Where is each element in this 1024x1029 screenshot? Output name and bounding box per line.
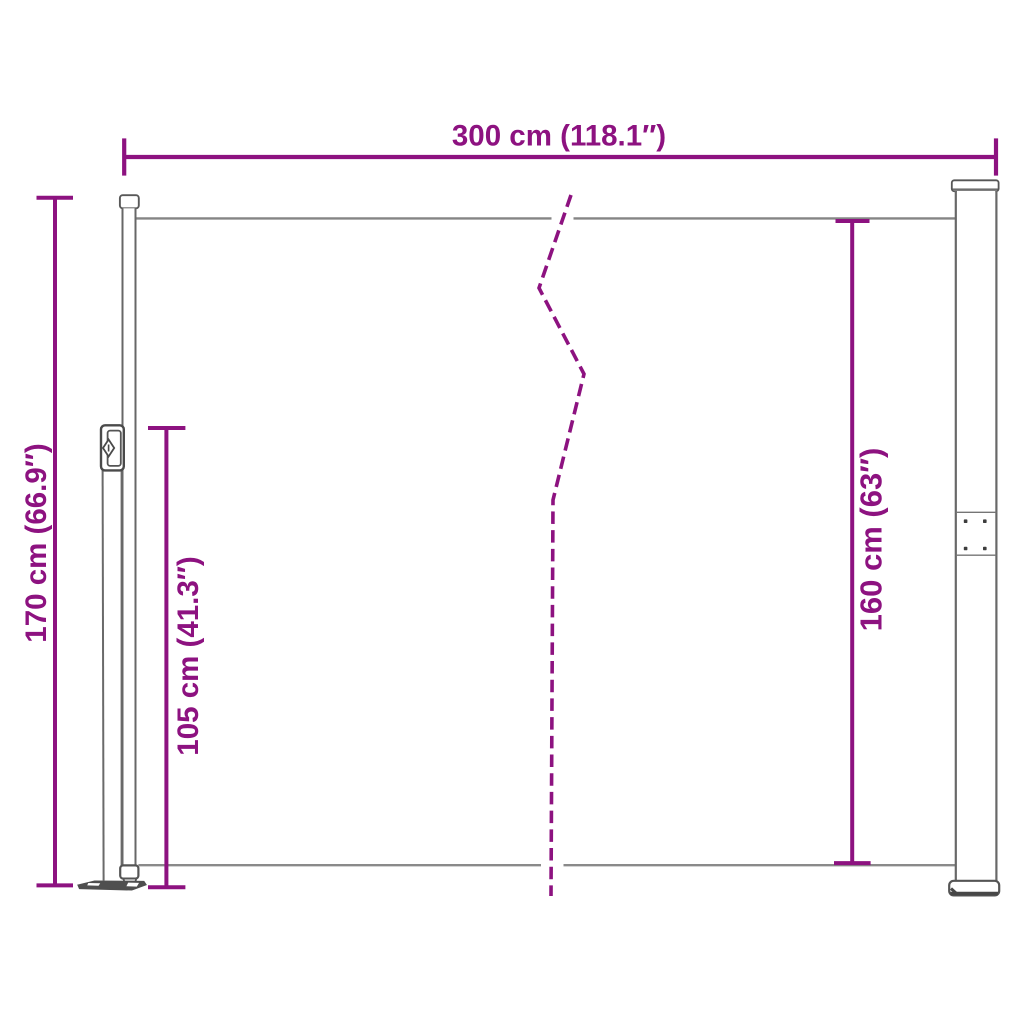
svg-text:160 cm (63″): 160 cm (63″) bbox=[854, 448, 889, 632]
svg-text:170 cm (66.9″): 170 cm (66.9″) bbox=[20, 443, 53, 642]
svg-text:300 cm (118.1″): 300 cm (118.1″) bbox=[452, 119, 666, 152]
svg-text:105 cm (41.3″): 105 cm (41.3″) bbox=[172, 556, 205, 755]
